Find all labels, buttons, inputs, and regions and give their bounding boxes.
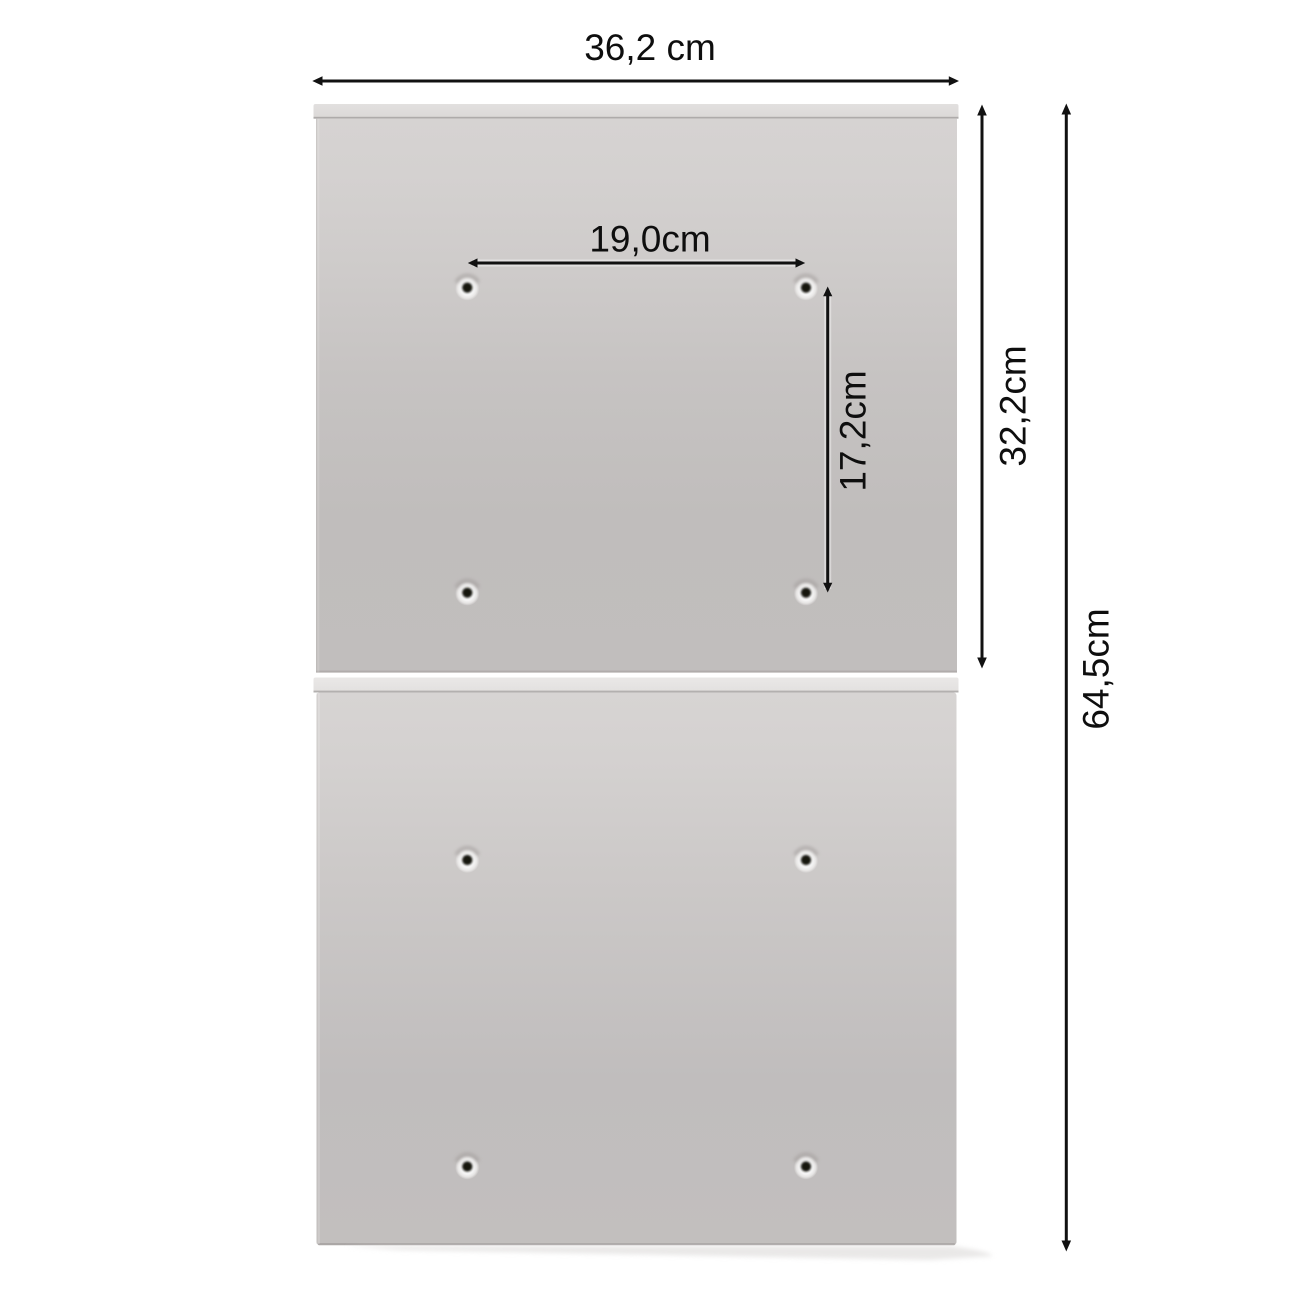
svg-text:64,5cm: 64,5cm (1076, 608, 1117, 729)
svg-text:17,2cm: 17,2cm (833, 370, 874, 491)
svg-text:19,0cm: 19,0cm (589, 219, 710, 260)
svg-text:36,2 cm: 36,2 cm (584, 27, 716, 68)
svg-text:32,2cm: 32,2cm (993, 345, 1034, 466)
